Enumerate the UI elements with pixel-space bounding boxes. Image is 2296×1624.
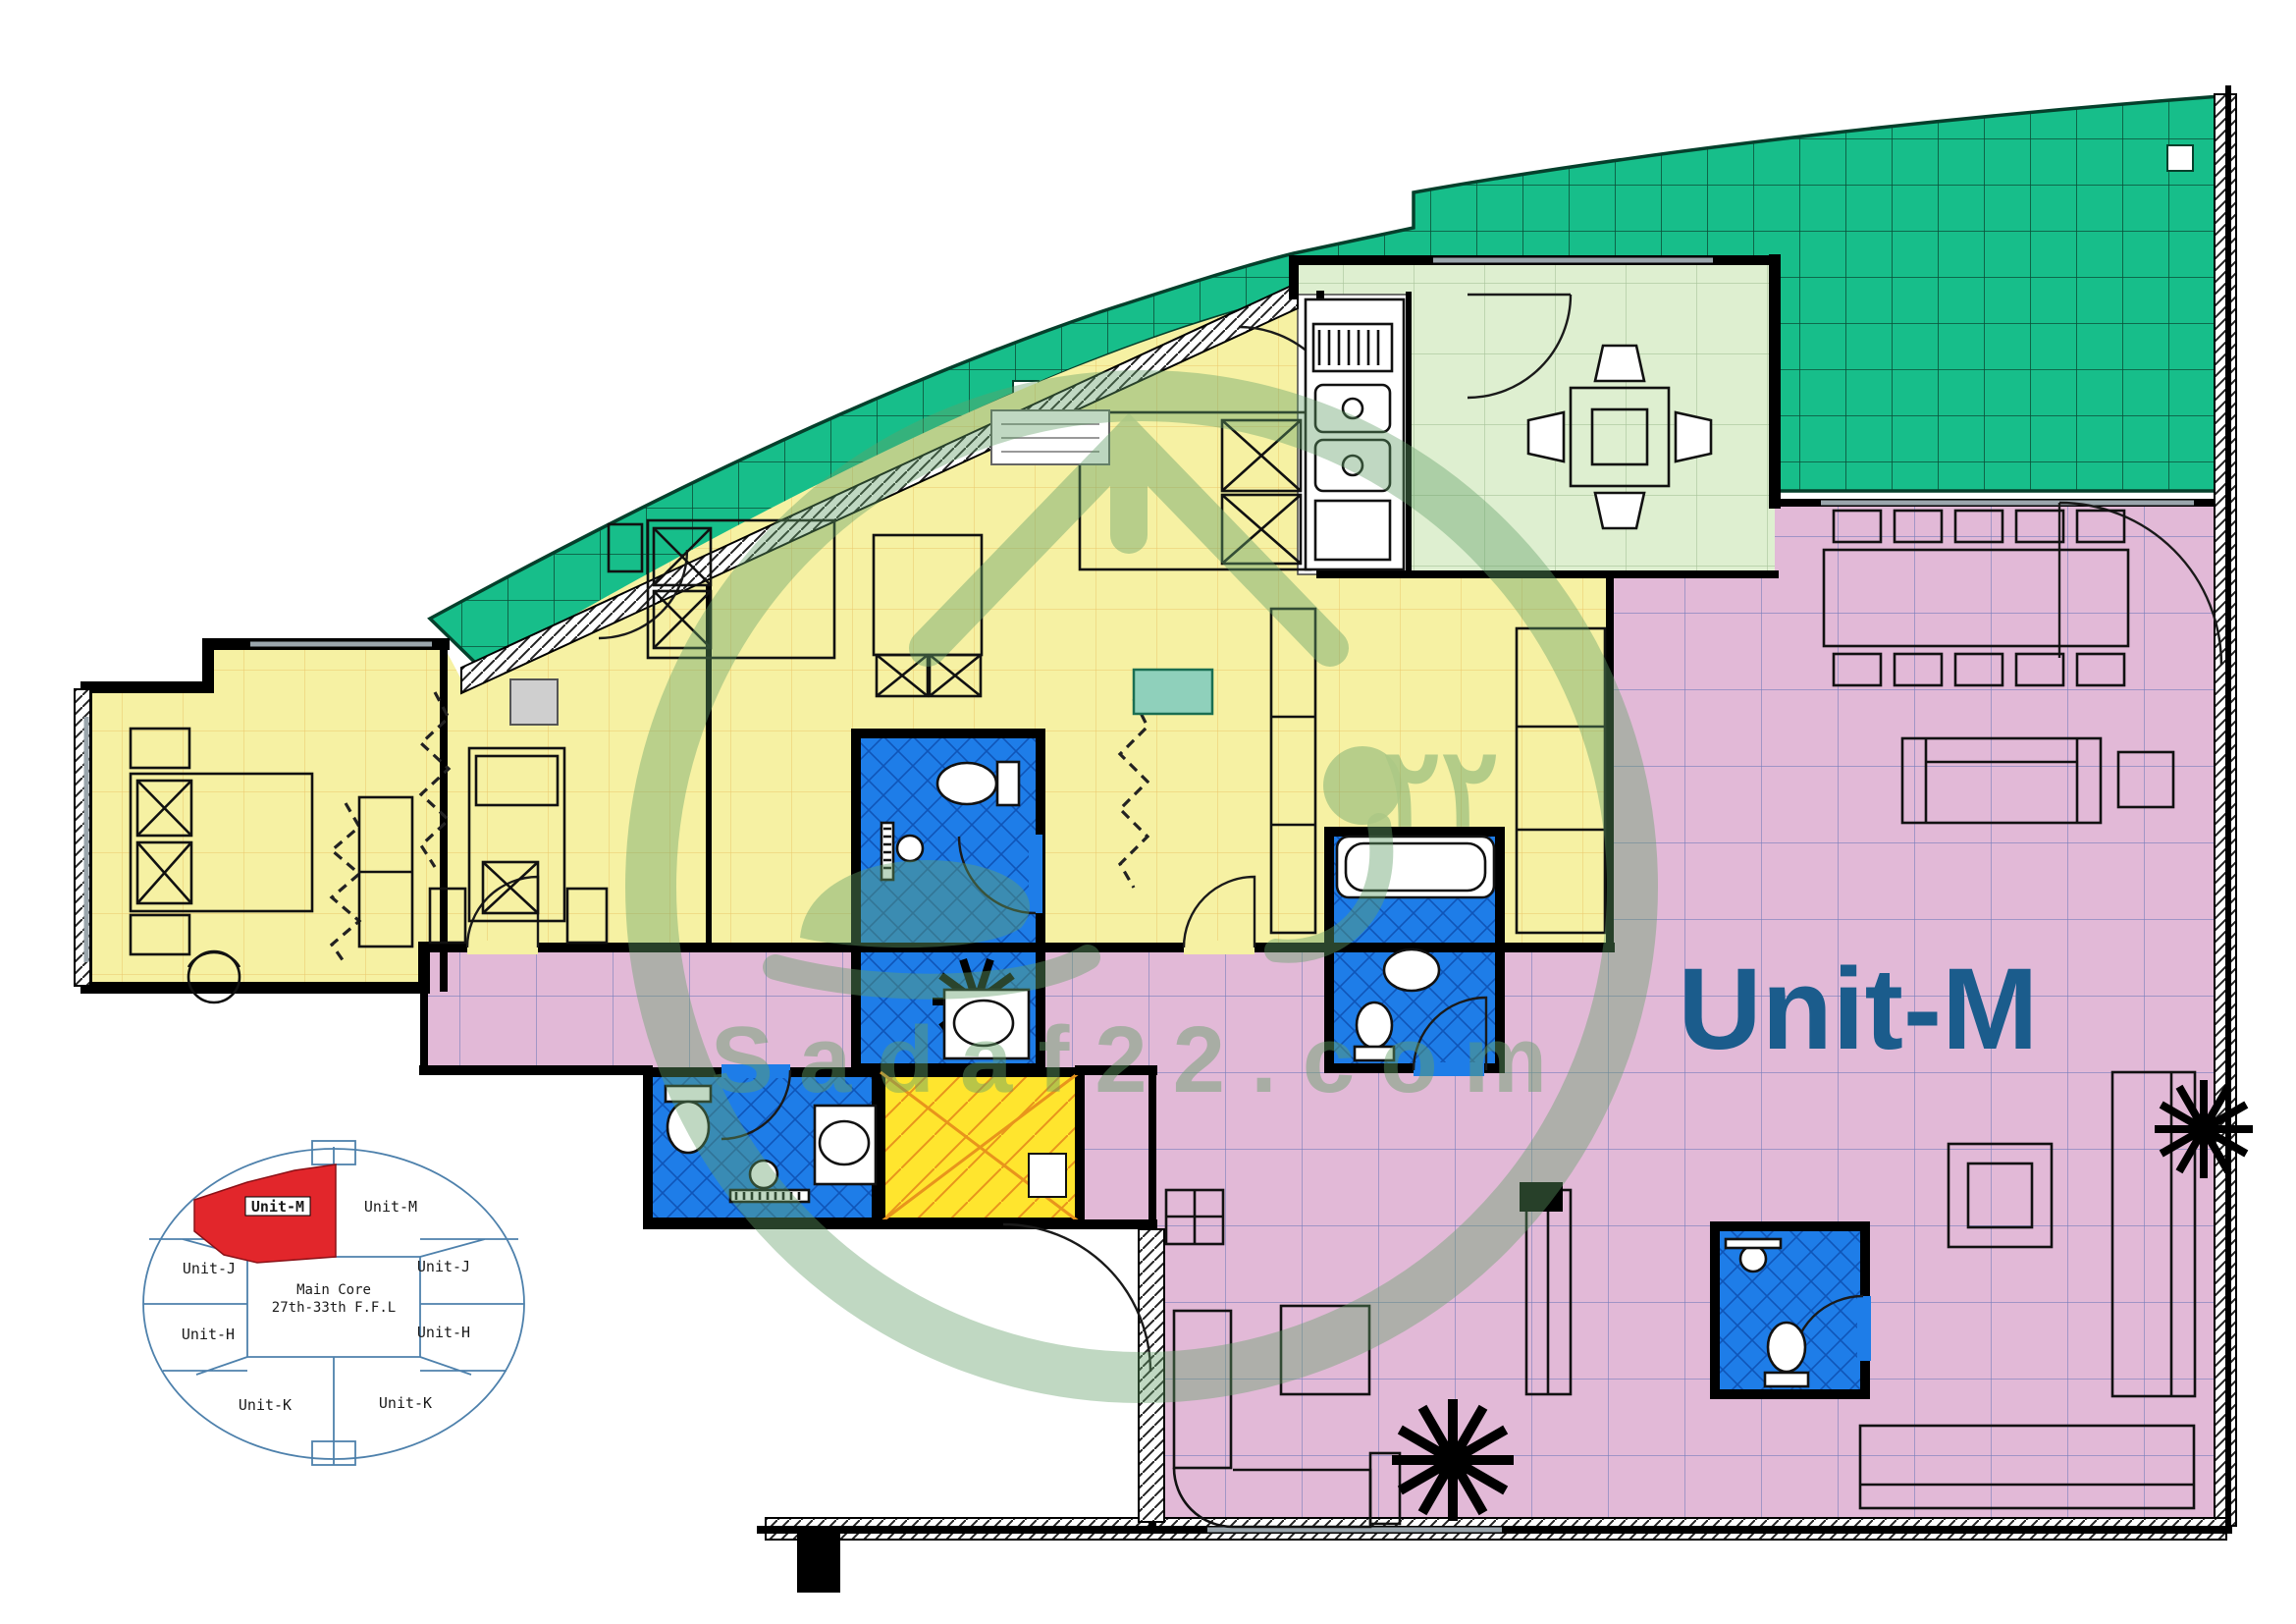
key-plan-unit-m-left: Unit-M	[251, 1198, 304, 1216]
key-plan-unit-j-left: Unit-J	[183, 1260, 236, 1277]
terrace-vent	[2167, 145, 2193, 171]
watermark-site: Sadaf22.com	[711, 1007, 1573, 1112]
unit-label: Unit-M	[1679, 945, 2039, 1074]
key-plan-unit-h-left: Unit-H	[182, 1326, 235, 1343]
key-plan-core-line1: Main Core	[296, 1282, 371, 1298]
key-plan-unit-k-right: Unit-K	[379, 1394, 432, 1412]
key-plan: Unit-M Unit-M Unit-J Unit-J Unit-H Unit-…	[143, 1141, 524, 1465]
key-plan-unit-h-right: Unit-H	[417, 1324, 470, 1341]
key-plan-unit-m-right: Unit-M	[364, 1198, 417, 1216]
key-plan-unit-k-left: Unit-K	[239, 1396, 292, 1414]
key-plan-unit-j-right: Unit-J	[417, 1258, 470, 1275]
key-plan-core-line2: 27th-33th F.F.L	[272, 1300, 396, 1316]
watermark-number: ٢٢	[1383, 728, 1499, 848]
floor-plan-canvas: ٢٢ Sadaf22.com Unit-M Unit-M Unit-M Unit…	[0, 0, 2296, 1624]
floor-plan-svg: ٢٢ Sadaf22.com Unit-M Unit-M Unit-M Unit…	[0, 0, 2296, 1624]
